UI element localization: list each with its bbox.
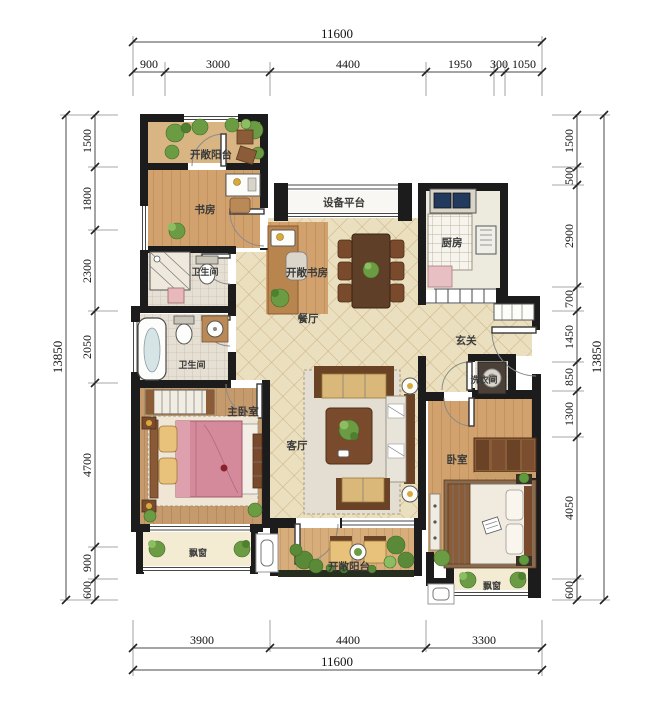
room-label-bedroom: 卧室 [447, 453, 468, 466]
armchair-icon [336, 478, 390, 510]
sink-basin-icon [434, 193, 451, 208]
dim-top-seg: 300 [490, 57, 508, 71]
plant-icon [363, 262, 379, 278]
dim-left-seg: 900 [80, 554, 94, 572]
room-label-dining: 餐厅 [297, 312, 319, 325]
wardrobe-icon [474, 438, 536, 478]
sink-basin-icon [453, 193, 470, 208]
room-label-living: 客厅 [286, 439, 308, 452]
room-label-laundry: 洗衣间 [470, 374, 497, 385]
room-label-equipment: 设备平台 [323, 196, 365, 209]
chaise-sofa-icon [386, 394, 415, 484]
study-chair-icon [230, 198, 250, 213]
dim-left-seg: 600 [80, 581, 94, 599]
dim-top-seg: 900 [140, 57, 158, 71]
dim-top-seg: 1950 [448, 57, 472, 71]
plant-icon [271, 289, 289, 307]
dim-left-seg: 1500 [80, 129, 94, 153]
room-label-bay-right: 飘窗 [483, 580, 501, 591]
dim-bottom-seg: 3300 [472, 633, 496, 647]
shoe-cabinet-icon [494, 304, 534, 320]
floor-plan-drawing: 11600 900 3000 4400 1950 300 1050 3900 4… [0, 0, 670, 715]
sofa-icon [314, 366, 394, 398]
dim-left-seg: 2050 [80, 335, 94, 359]
dim-top-seg: 4400 [336, 57, 360, 71]
room-label-kitchen: 厨房 [442, 236, 463, 249]
window-living-south [342, 518, 414, 528]
window-kitchen-bottom [426, 288, 496, 304]
coffee-table-icon [326, 408, 372, 464]
bed-icon [448, 484, 532, 564]
dining-furniture [338, 234, 404, 308]
dim-right-total: 13850 [589, 341, 604, 374]
dim-left-total: 13850 [50, 341, 65, 374]
dim-left-seg: 4700 [80, 453, 94, 477]
floor-plan-page: 11600 900 3000 4400 1950 300 1050 3900 4… [0, 0, 670, 715]
dim-top-seg: 3000 [206, 57, 230, 71]
dim-bottom-seg: 4400 [336, 633, 360, 647]
ac-unit-right [428, 584, 454, 604]
dimension-bottom: 3900 4400 3300 11600 [129, 620, 546, 676]
dim-right-seg: 700 [562, 290, 576, 308]
shower-icon [150, 252, 190, 290]
dim-right-seg: 4050 [562, 496, 576, 520]
dim-left-seg: 1800 [80, 187, 94, 211]
room-label-bay-left: 飘窗 [189, 547, 207, 558]
room-label-study: 书房 [195, 203, 216, 216]
room-label-entry: 玄关 [456, 334, 477, 347]
entry-furniture [494, 304, 534, 320]
dimension-top: 11600 900 3000 4400 1950 300 1050 [129, 26, 546, 96]
room-label-master: 主卧室 [227, 405, 259, 418]
dimension-right: 13850 1500 500 2900 700 1450 850 1300 40… [552, 111, 610, 604]
kitchen-cabinet-icon [428, 266, 452, 287]
vanity-icon [168, 288, 184, 303]
fridge-icon [476, 226, 496, 254]
window-master-bay-opening [150, 524, 250, 532]
room-label-open-study: 开敞书房 [286, 266, 328, 279]
corridor-floor [236, 252, 268, 382]
toilet-icon [174, 316, 194, 344]
dim-bottom-seg: 3900 [190, 633, 214, 647]
tv-cabinet-icon [253, 434, 262, 488]
dim-right-seg: 600 [562, 581, 576, 599]
room-label-balcony-top: 开敞阳台 [190, 148, 232, 161]
dim-right-seg: 850 [562, 368, 576, 386]
window-equipment-bottom [288, 212, 398, 218]
bathtub-icon [138, 318, 166, 380]
window-equipment-top [288, 183, 398, 191]
basin-icon [202, 316, 228, 342]
dim-right-seg: 1450 [562, 325, 576, 349]
balcony-chair-icon [364, 536, 386, 563]
wardrobe-icon [146, 390, 214, 414]
dim-right-seg: 1300 [562, 402, 576, 426]
window-study-left [140, 206, 148, 250]
balcony-chair-icon [330, 536, 352, 563]
dim-top-total: 11600 [321, 26, 353, 41]
room-label-bath-upper: 卫生间 [191, 266, 218, 277]
room-label-bath-lower: 卫生间 [178, 359, 205, 370]
window-master-bay-front [143, 566, 250, 572]
window-bay-right-front [454, 590, 528, 598]
dim-right-seg: 1500 [562, 129, 576, 153]
balcony-table-icon [237, 130, 253, 144]
plant-icon [434, 550, 450, 566]
room-label-balcony-bottom: 开敞阳台 [328, 560, 370, 573]
dimension-left: 13850 1500 1800 2300 2050 4700 900 600 [50, 111, 118, 604]
ac-unit-left [256, 534, 278, 572]
dim-bottom-total: 11600 [321, 654, 353, 669]
dim-right-seg: 500 [562, 167, 576, 185]
dim-top-seg: 1050 [512, 57, 536, 71]
dim-left-seg: 2300 [80, 259, 94, 283]
dim-right-seg: 2900 [562, 224, 576, 248]
